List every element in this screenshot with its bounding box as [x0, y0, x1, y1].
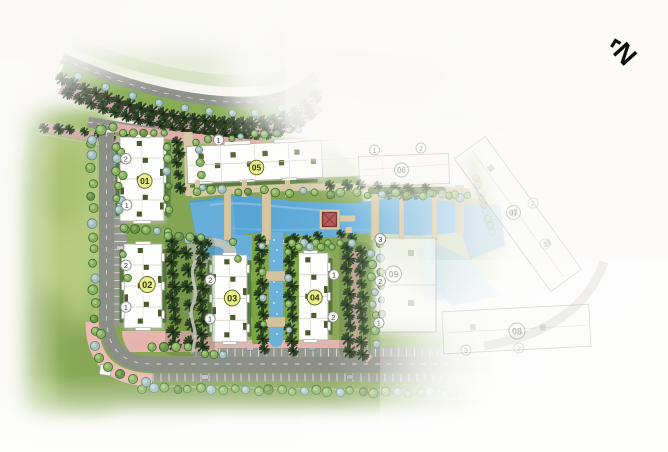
svg-text:1: 1 [373, 148, 377, 155]
svg-text:04: 04 [310, 293, 320, 303]
svg-text:1: 1 [208, 315, 212, 324]
svg-text:05: 05 [252, 163, 262, 173]
svg-text:07: 07 [509, 209, 518, 218]
svg-text:1: 1 [332, 271, 336, 280]
svg-text:09: 09 [388, 270, 398, 280]
svg-text:1: 1 [125, 201, 129, 210]
svg-text:2: 2 [378, 277, 382, 286]
svg-text:2: 2 [419, 146, 423, 153]
svg-text:2: 2 [331, 313, 335, 322]
svg-text:2: 2 [124, 261, 128, 270]
svg-text:2: 2 [208, 276, 212, 285]
svg-text:2: 2 [531, 201, 535, 208]
svg-text:08: 08 [512, 327, 522, 337]
svg-text:06: 06 [397, 166, 406, 175]
svg-text:01: 01 [140, 176, 150, 186]
svg-text:1: 1 [124, 303, 128, 312]
svg-text:1: 1 [217, 136, 221, 145]
svg-text:03: 03 [227, 293, 237, 303]
svg-text:1: 1 [543, 242, 547, 249]
svg-text:2: 2 [124, 155, 128, 164]
svg-text:2: 2 [517, 346, 521, 353]
svg-text:3: 3 [464, 348, 468, 355]
svg-text:1: 1 [377, 319, 381, 328]
svg-text:3: 3 [378, 235, 382, 244]
svg-text:02: 02 [142, 280, 152, 290]
